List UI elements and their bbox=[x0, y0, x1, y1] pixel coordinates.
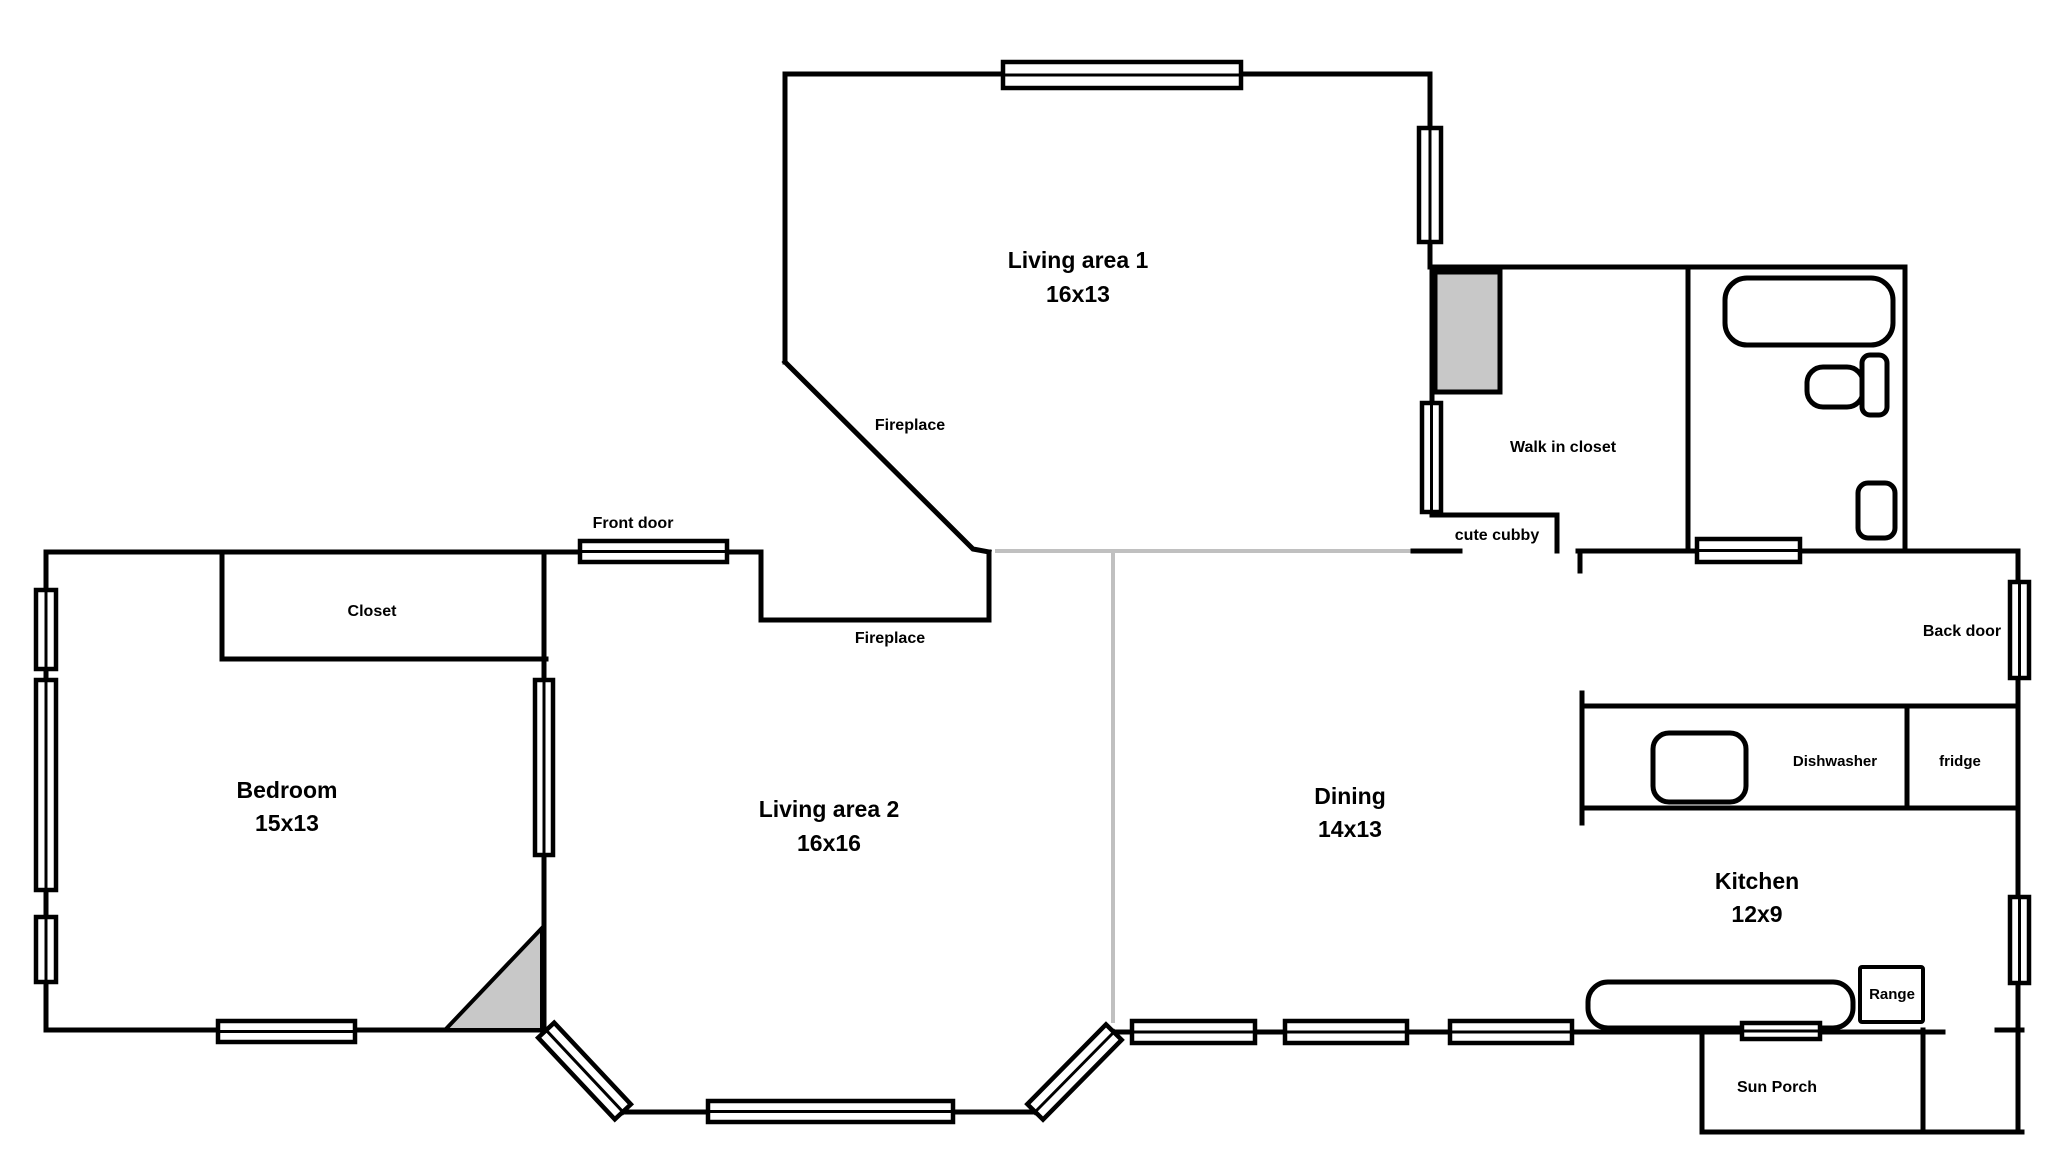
cute-cubby-label: cute cubby bbox=[1455, 527, 1540, 544]
kitchen-dims-label: 12x9 bbox=[1731, 901, 1782, 927]
kitchen-sink-icon bbox=[1653, 733, 1746, 802]
kitchen-name-label: Kitchen bbox=[1715, 868, 1799, 894]
door-swing-triangle bbox=[445, 928, 542, 1030]
window-bedroom-left-3 bbox=[36, 917, 56, 982]
window-bay-left-diagonal bbox=[538, 1023, 631, 1120]
window-sunporch-top bbox=[1742, 1023, 1820, 1039]
window-living1-top bbox=[1003, 62, 1241, 88]
fridge-label: fridge bbox=[1939, 753, 1981, 770]
window-bedroom-left-2 bbox=[36, 680, 56, 890]
window-bay-right-diagonal bbox=[1027, 1024, 1121, 1119]
window-kitchen-right bbox=[2010, 897, 2029, 983]
sun-porch-label: Sun Porch bbox=[1737, 1079, 1817, 1096]
living1-name-label: Living area 1 bbox=[1008, 247, 1149, 273]
walls bbox=[46, 74, 2022, 1132]
front-door-marker bbox=[580, 541, 727, 562]
range-label: Range bbox=[1869, 986, 1915, 1003]
bathtub-icon bbox=[1725, 278, 1893, 345]
bath-sink-icon bbox=[1858, 483, 1895, 538]
front-door-label: Front door bbox=[593, 515, 674, 532]
dining-dims-label: 14x13 bbox=[1318, 816, 1382, 842]
living2-dims-label: 16x16 bbox=[797, 830, 861, 856]
window-bedroom-bottom bbox=[218, 1021, 355, 1042]
fireplace2-label: Fireplace bbox=[855, 630, 925, 647]
walk-in-closet-label: Walk in closet bbox=[1510, 439, 1617, 456]
wall-fireplace2-notch bbox=[761, 552, 989, 620]
window-bedroom-left-1 bbox=[36, 590, 56, 669]
back-door-label: Back door bbox=[1923, 623, 2001, 640]
living2-name-label: Living area 2 bbox=[759, 796, 900, 822]
window-dining-bottom-2 bbox=[1285, 1021, 1407, 1043]
back-door-marker bbox=[2010, 582, 2029, 678]
toilet-bowl-icon bbox=[1807, 367, 1863, 407]
bedroom-name-label: Bedroom bbox=[237, 777, 338, 803]
window-dining-bottom-1 bbox=[1132, 1021, 1255, 1043]
closet-label: Closet bbox=[348, 603, 398, 620]
window-dining-bottom-3 bbox=[1450, 1021, 1572, 1043]
window-living1-right bbox=[1419, 128, 1441, 242]
bedroom-dims-label: 15x13 bbox=[255, 810, 319, 836]
window-bathroom-bottom bbox=[1697, 539, 1800, 562]
window-walkincloset-left bbox=[1422, 403, 1441, 512]
window-bay-bottom bbox=[708, 1101, 953, 1122]
floor-plan: Living area 1 16x13 Living area 2 16x16 … bbox=[0, 0, 2048, 1167]
dining-name-label: Dining bbox=[1314, 783, 1386, 809]
closet-shelf-shaded-box bbox=[1435, 272, 1500, 392]
opening-bedroom-right bbox=[535, 680, 553, 855]
living1-dims-label: 16x13 bbox=[1046, 281, 1110, 307]
wall-living1-diagonal bbox=[785, 362, 989, 552]
dishwasher-label: Dishwasher bbox=[1793, 753, 1877, 770]
fireplace1-label: Fireplace bbox=[875, 417, 945, 434]
windows bbox=[36, 62, 2029, 1122]
toilet-tank-icon bbox=[1862, 355, 1887, 415]
bathroom-fixtures bbox=[1725, 278, 1895, 538]
